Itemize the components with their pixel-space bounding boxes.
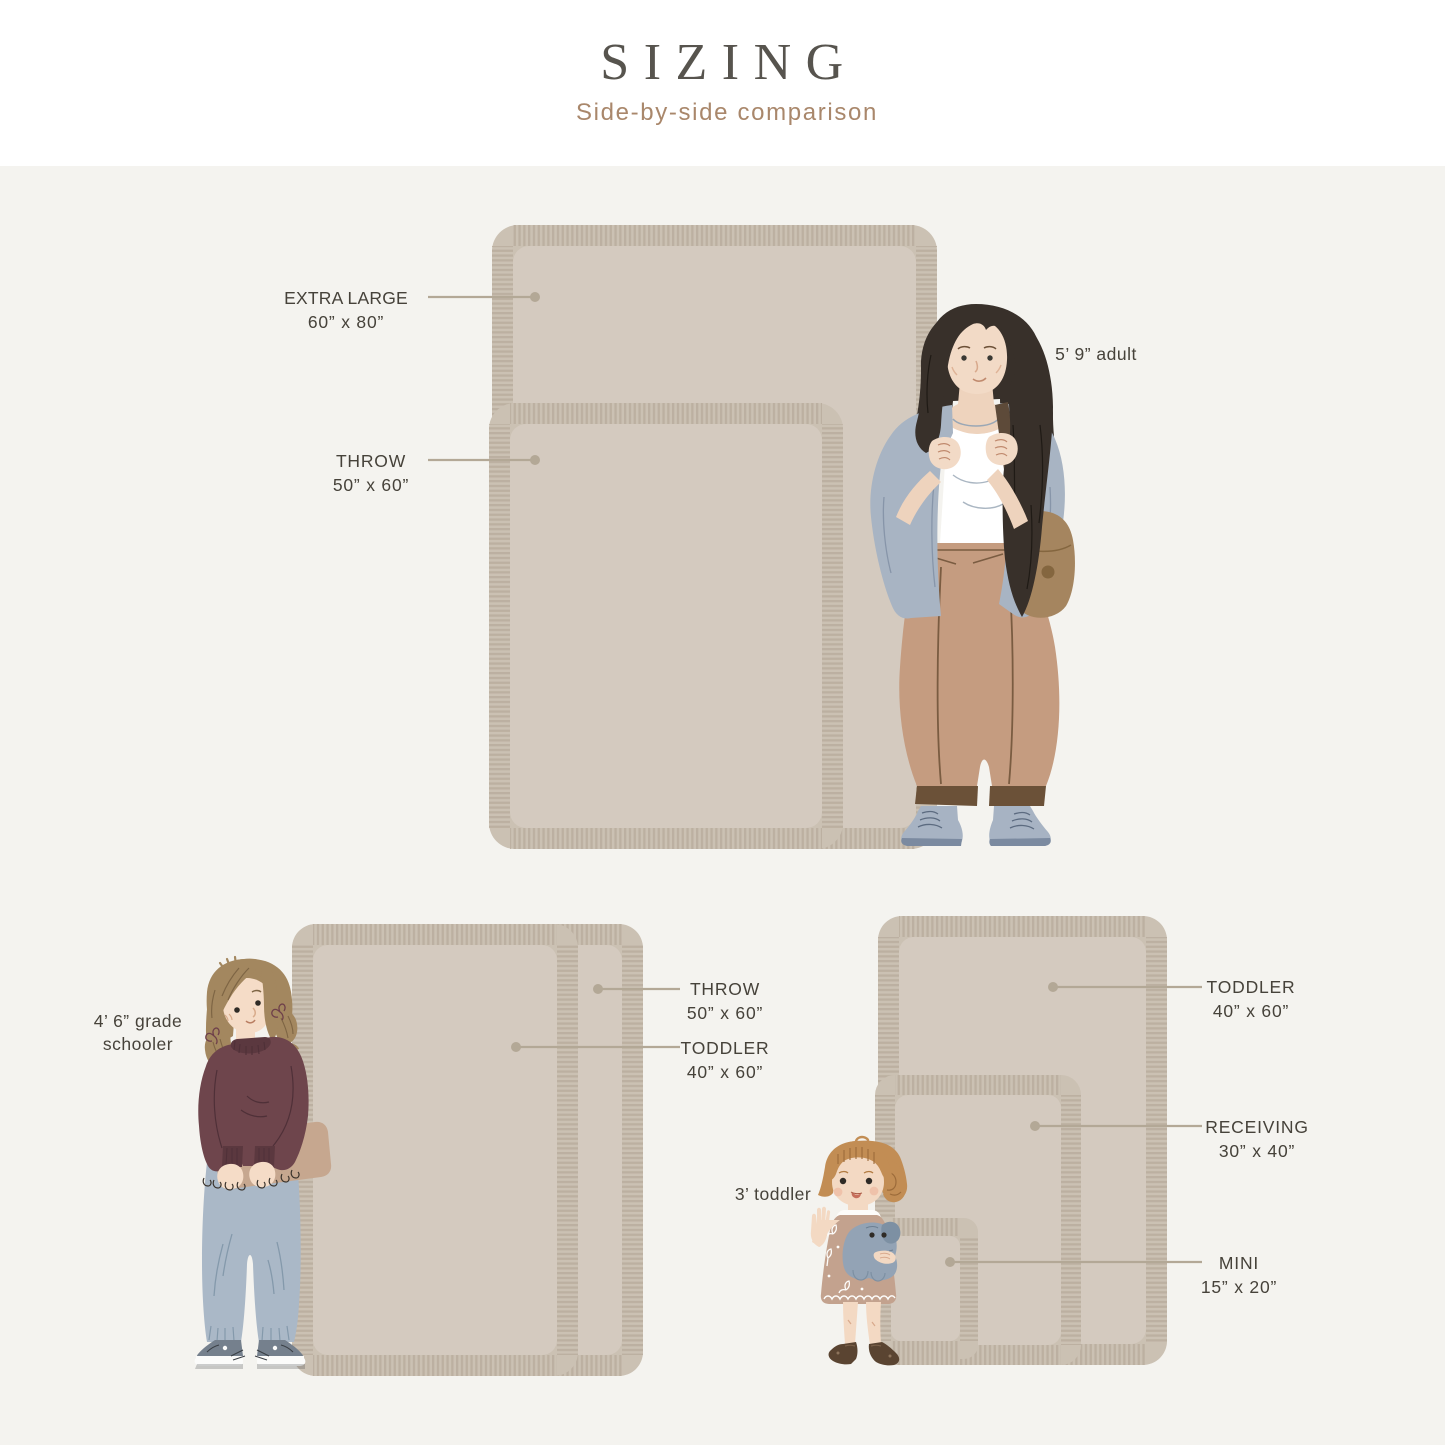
svg-text:MINI: MINI (1219, 1253, 1259, 1273)
svg-text:Side-by-side comparison: Side-by-side comparison (576, 99, 878, 126)
svg-text:TODDLER: TODDLER (1207, 977, 1296, 997)
svg-text:60” x 80”: 60” x 80” (308, 312, 384, 332)
svg-text:40” x 60”: 40” x 60” (687, 1062, 763, 1082)
svg-text:TODDLER: TODDLER (681, 1038, 770, 1058)
svg-text:50” x 60”: 50” x 60” (687, 1003, 763, 1023)
svg-text:RECEIVING: RECEIVING (1205, 1117, 1308, 1137)
svg-text:THROW: THROW (336, 451, 406, 471)
svg-text:schooler: schooler (103, 1034, 173, 1054)
svg-text:15” x 20”: 15” x 20” (1201, 1277, 1277, 1297)
svg-text:SIZING: SIZING (600, 34, 857, 91)
svg-text:3’ toddler: 3’ toddler (735, 1184, 811, 1204)
svg-text:4’ 6” grade: 4’ 6” grade (94, 1011, 183, 1031)
svg-text:EXTRA LARGE: EXTRA LARGE (284, 288, 408, 308)
svg-text:50” x 60”: 50” x 60” (333, 475, 409, 495)
svg-text:30” x 40”: 30” x 40” (1219, 1141, 1295, 1161)
svg-text:40” x 60”: 40” x 60” (1213, 1001, 1289, 1021)
svg-text:5’ 9” adult: 5’ 9” adult (1055, 344, 1137, 364)
svg-text:THROW: THROW (690, 979, 760, 999)
